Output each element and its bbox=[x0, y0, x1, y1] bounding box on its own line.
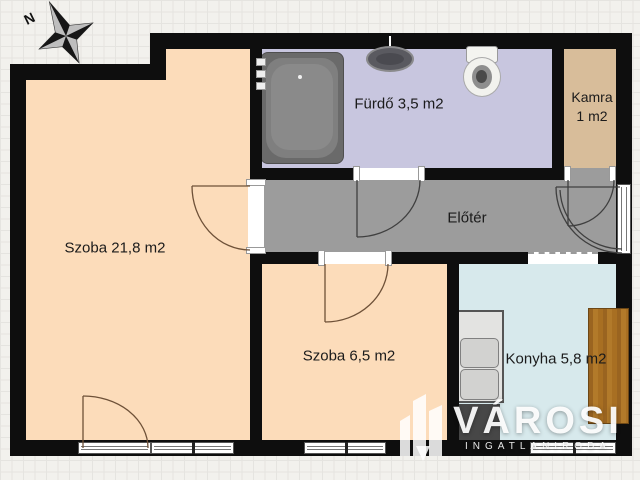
door-opening-szoba-large bbox=[248, 181, 264, 252]
label-eloter: Előtér bbox=[447, 210, 486, 227]
bathtub-tap-2 bbox=[256, 70, 266, 78]
passage-opening-konyha bbox=[528, 252, 598, 264]
label-szoba-small: Szoba 6,5 m2 bbox=[303, 348, 396, 365]
balcony-door-frame bbox=[78, 442, 151, 454]
bathtub-fixture bbox=[260, 52, 344, 164]
toilet-bowl bbox=[463, 57, 501, 97]
label-kamra-line2: 1 m2 bbox=[571, 107, 612, 126]
window-szoba-small bbox=[304, 442, 386, 454]
brand-logo-text: VÁROSI bbox=[452, 399, 624, 443]
label-konyha: Konyha 5,8 m2 bbox=[506, 351, 607, 368]
label-kamra: Kamra 1 m2 bbox=[571, 88, 612, 126]
kitchen-sink-basin-2 bbox=[460, 369, 499, 400]
bathtub-tap-3 bbox=[256, 82, 266, 90]
label-furdo: Fürdő 3,5 m2 bbox=[354, 96, 443, 113]
wall-interior-furdo-eloter bbox=[262, 168, 616, 180]
bathtub-tap-1 bbox=[256, 58, 266, 66]
bathtub-basin bbox=[271, 64, 333, 150]
room-szoba-large-floor-upper bbox=[162, 49, 250, 80]
door-opening-furdo bbox=[355, 168, 423, 180]
window-szoba-large bbox=[151, 442, 234, 454]
door-opening-kamra bbox=[566, 168, 614, 180]
label-szoba-large: Szoba 21,8 m2 bbox=[65, 240, 166, 257]
brand-logo-subtitle: INGATLANIRODA bbox=[450, 441, 626, 452]
floor-plan-page: { "compass": { "north_label": "N" }, "ro… bbox=[0, 0, 640, 480]
bathroom-sink-basin bbox=[376, 53, 404, 65]
label-kamra-line1: Kamra bbox=[571, 88, 612, 107]
wall-exterior-left bbox=[10, 64, 26, 456]
kitchen-sink-unit bbox=[452, 310, 504, 403]
door-opening-szoba-small bbox=[320, 252, 390, 264]
compass-north-label: N bbox=[21, 9, 37, 28]
entrance-door-frame bbox=[617, 184, 631, 254]
kitchen-sink-basin-1 bbox=[460, 338, 499, 368]
wall-interior-furdo-kamra bbox=[552, 49, 564, 168]
room-szoba-large-floor bbox=[26, 80, 250, 440]
bathroom-sink-fixture bbox=[366, 46, 414, 72]
bathtub-drain-dot bbox=[298, 75, 302, 79]
wall-exterior-top-left bbox=[10, 64, 166, 80]
toilet-bowl-drain bbox=[476, 70, 487, 83]
room-eloter-floor bbox=[262, 180, 616, 252]
